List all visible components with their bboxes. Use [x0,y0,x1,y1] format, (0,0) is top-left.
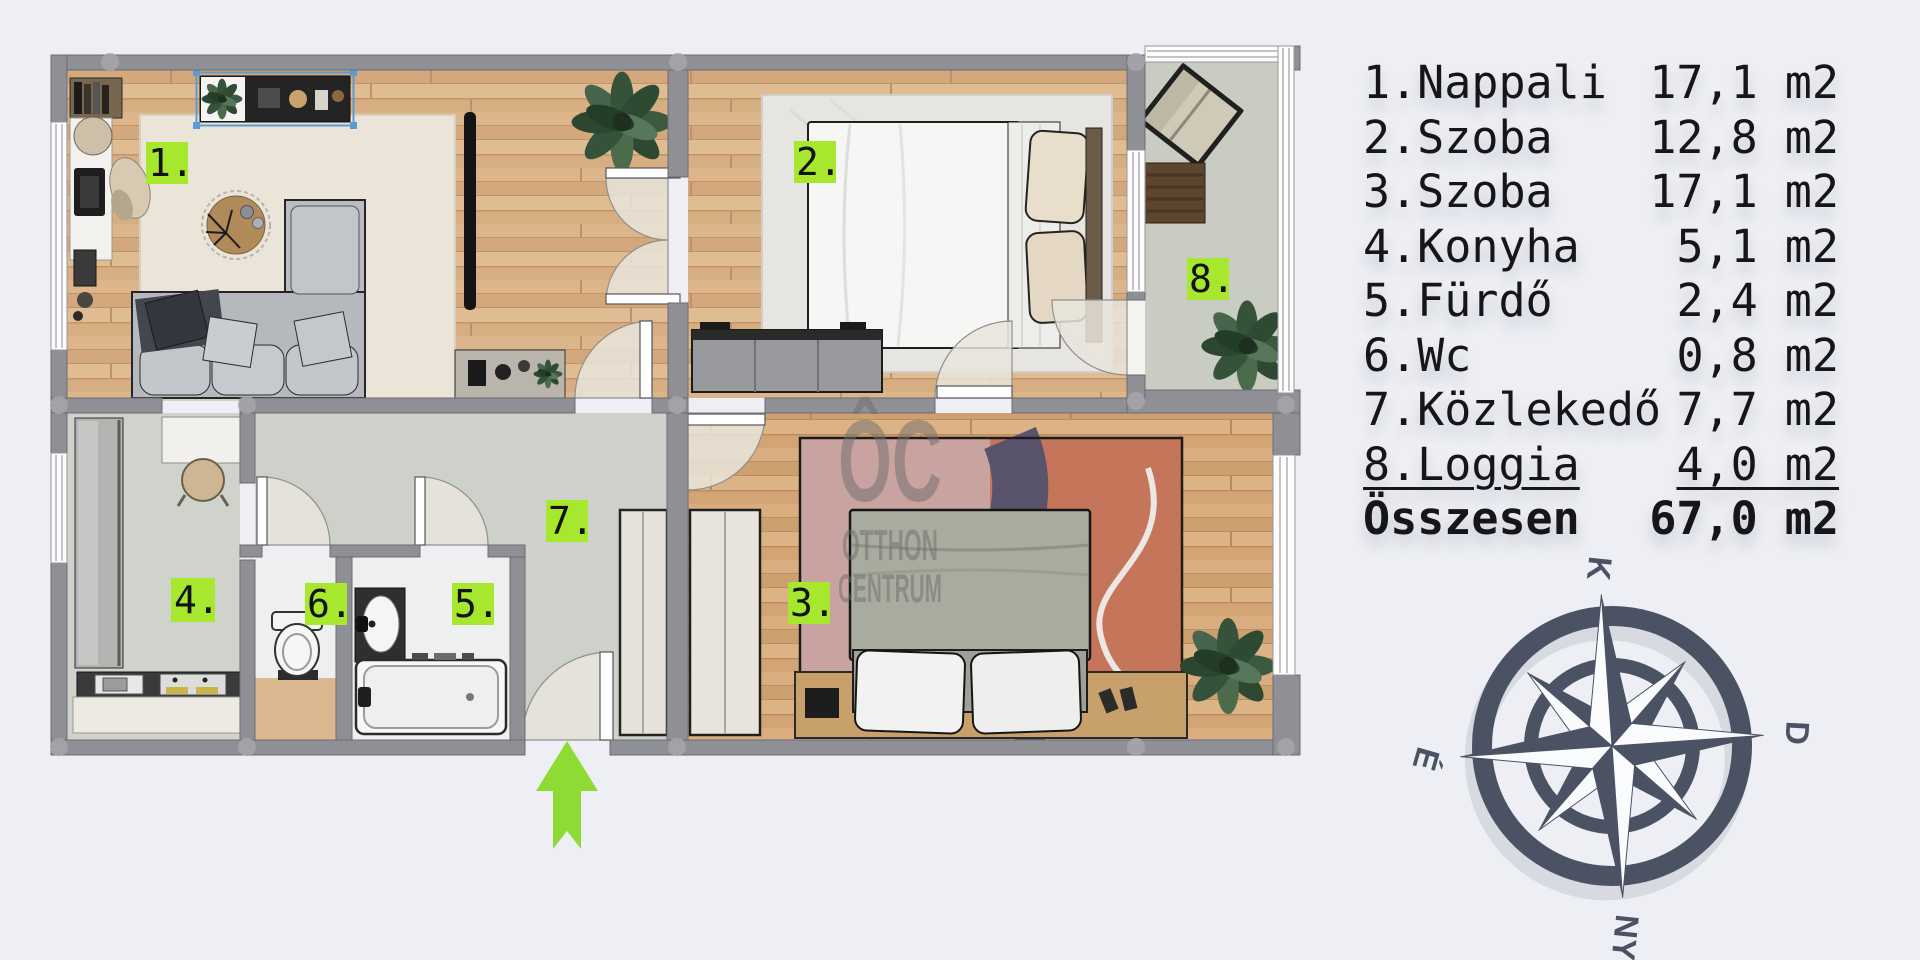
speaker [74,250,96,286]
legend-total-area: 67,0 m2 [1649,492,1839,547]
legend-room-area: 0,8 m2 [1676,329,1839,384]
room-chip-4-label: 4. [174,578,220,622]
room-chip-2-label: 2. [796,140,842,184]
legend-row: 2.Szoba12,8 m2 [1363,111,1839,166]
tv [464,112,476,310]
watermark: ÔC OTTHON CENTRUM [838,396,942,611]
chaise-cushion [291,206,359,294]
nightstand [805,688,839,718]
bed2-pillow [1025,130,1089,224]
watermark-line2: CENTRUM [838,567,942,611]
legend-room-name: 2.Szoba [1363,111,1553,166]
compass-label-north: É [1406,743,1448,774]
room-chip-3-label: 3. [790,581,836,625]
room-chip-5-label: 5. [454,582,500,626]
kitchen-chair [182,459,224,501]
loggia-side-window [1278,46,1294,393]
legend-room-name: 1.Nappali [1363,56,1607,111]
legend-room-name: 5.Fürdő [1363,274,1553,329]
legend-row: 6.Wc0,8 m2 [1363,329,1839,384]
corridor-furniture [620,510,667,735]
legend-row: 1.Nappali17,1 m2 [1363,56,1839,111]
sofa-cushion [140,345,210,395]
legend-row-total: Összesen67,0 m2 [1363,492,1839,547]
tub-faucet [358,687,371,707]
legend-row: 5.Fürdő2,4 m2 [1363,274,1839,329]
sofa-pillow [294,312,352,367]
legend-room-name: 8.Loggia [1363,438,1580,493]
living-window [51,122,67,350]
watermark-line1: OTTHON [842,521,938,570]
watermark-logo: ÔC [838,396,942,526]
loggia-top-window [1145,46,1284,62]
compass-rose-icon: K D NY É [1392,539,1833,960]
floorplan-page: 1. 2. 3. 4. 5. 6. 7. 8. ÔC OTTHON CENTRU… [0,0,1920,960]
bedroom2-loggia-window [1127,150,1145,292]
basin-faucet [356,616,368,632]
compass-label-west: NY [1605,913,1647,960]
legend-room-area: 4,0 m2 [1676,438,1839,493]
compass-label-south: D [1778,720,1816,746]
legend-total-label: Összesen [1363,492,1580,547]
legend-room-area: 17,1 m2 [1649,56,1839,111]
desk-chair [74,117,112,155]
bed3-pillow [971,650,1082,734]
room-chip-7-label: 7. [548,499,594,543]
bedroom3-window [1273,455,1295,675]
legend-room-name: 7.Közlekedő [1363,383,1661,438]
area-legend: 1.Nappali17,1 m2 2.Szoba12,8 m2 3.Szoba1… [1363,56,1839,547]
toilet-bowl [275,624,319,676]
living-plant [572,72,673,173]
entrance-arrow-icon [536,741,598,849]
legend-room-name: 6.Wc [1363,329,1471,384]
sofa-pillow [203,317,257,368]
legend-room-area: 12,8 m2 [1649,111,1839,166]
bed3-pillow [855,650,966,734]
room-chip-1-label: 1. [148,141,194,185]
console-plant [202,79,243,120]
legend-room-area: 7,7 m2 [1676,383,1839,438]
legend-room-name: 4.Konyha [1363,220,1580,275]
loggia-table [1145,163,1205,223]
legend-row: 3.Szoba17,1 m2 [1363,165,1839,220]
legend-row: 7.Közlekedő7,7 m2 [1363,383,1839,438]
legend-room-area: 5,1 m2 [1676,220,1839,275]
legend-row: 4.Konyha5,1 m2 [1363,220,1839,275]
kitchen-cabinet [73,697,240,733]
bedroom3-plant [1180,618,1276,714]
kitchen-window [51,453,67,563]
legend-room-name: 3.Szoba [1363,165,1553,220]
legend-room-area: 17,1 m2 [1649,165,1839,220]
legend-row-loggia: 8.Loggia4,0 m2 [1363,438,1839,493]
room-chip-8-label: 8. [1189,257,1235,301]
legend-room-area: 2,4 m2 [1676,274,1839,329]
kitchen-table [162,417,243,463]
room-chip-6-label: 6. [307,582,353,626]
wc-floor-wood-patch [255,678,336,740]
compass-label-east: K [1580,555,1619,583]
